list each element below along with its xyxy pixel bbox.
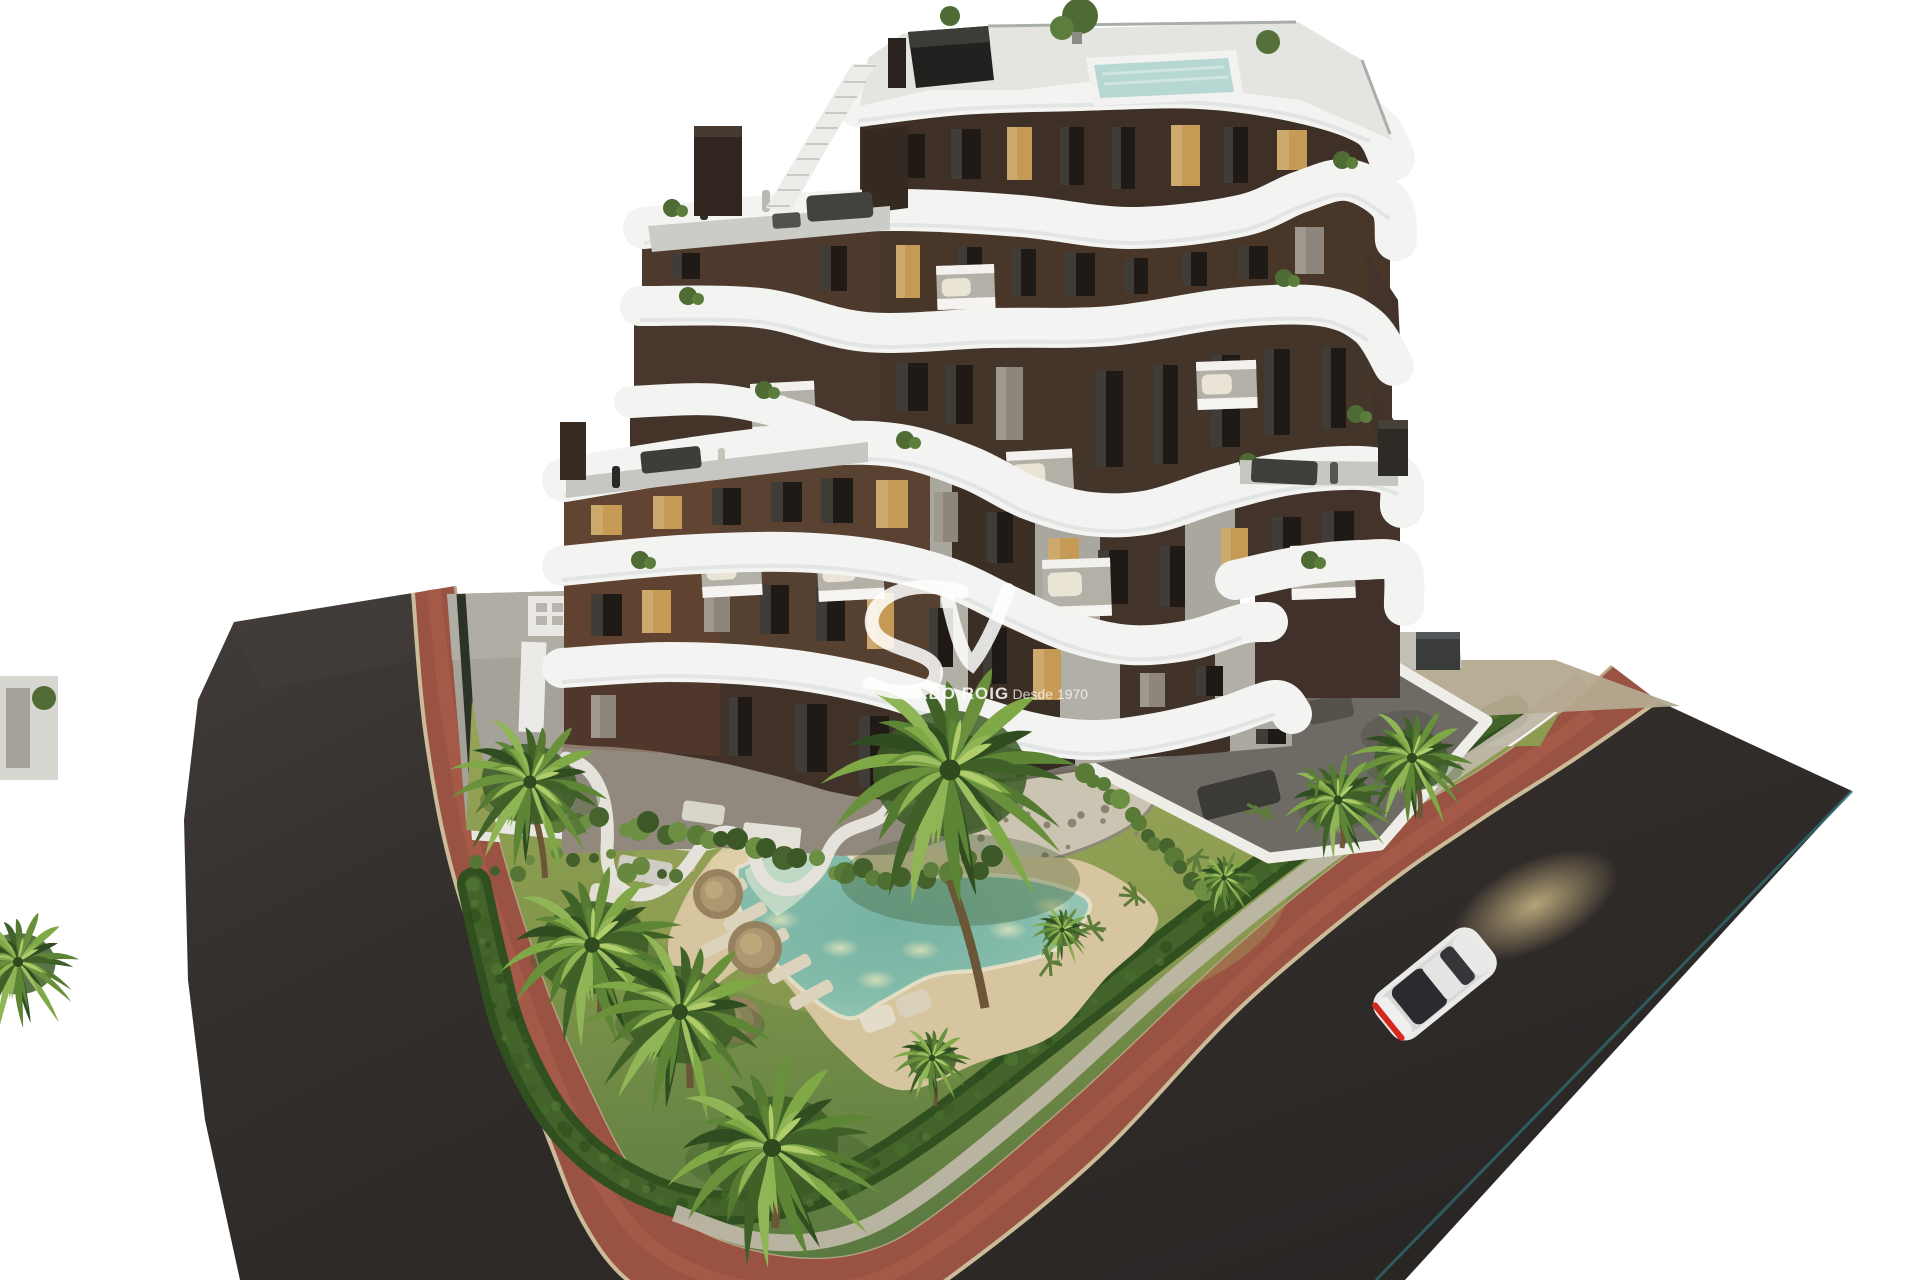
svg-text:· Desde 1970: · Desde 1970: [1004, 686, 1088, 702]
svg-text:CABO ROIG: CABO ROIG: [902, 684, 1009, 703]
